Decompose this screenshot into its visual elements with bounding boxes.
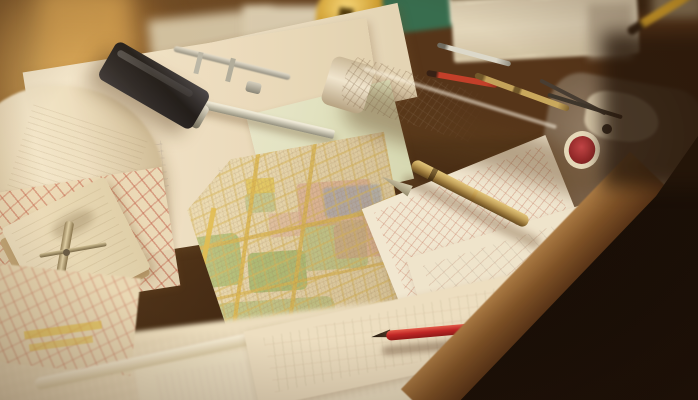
corner-survey-map [0,262,141,376]
red-street-grid [0,262,141,376]
photo-cartographers-desk [0,0,698,400]
trammel-screw [63,249,70,256]
map-park [183,286,211,318]
top-right-shadow [602,32,698,187]
